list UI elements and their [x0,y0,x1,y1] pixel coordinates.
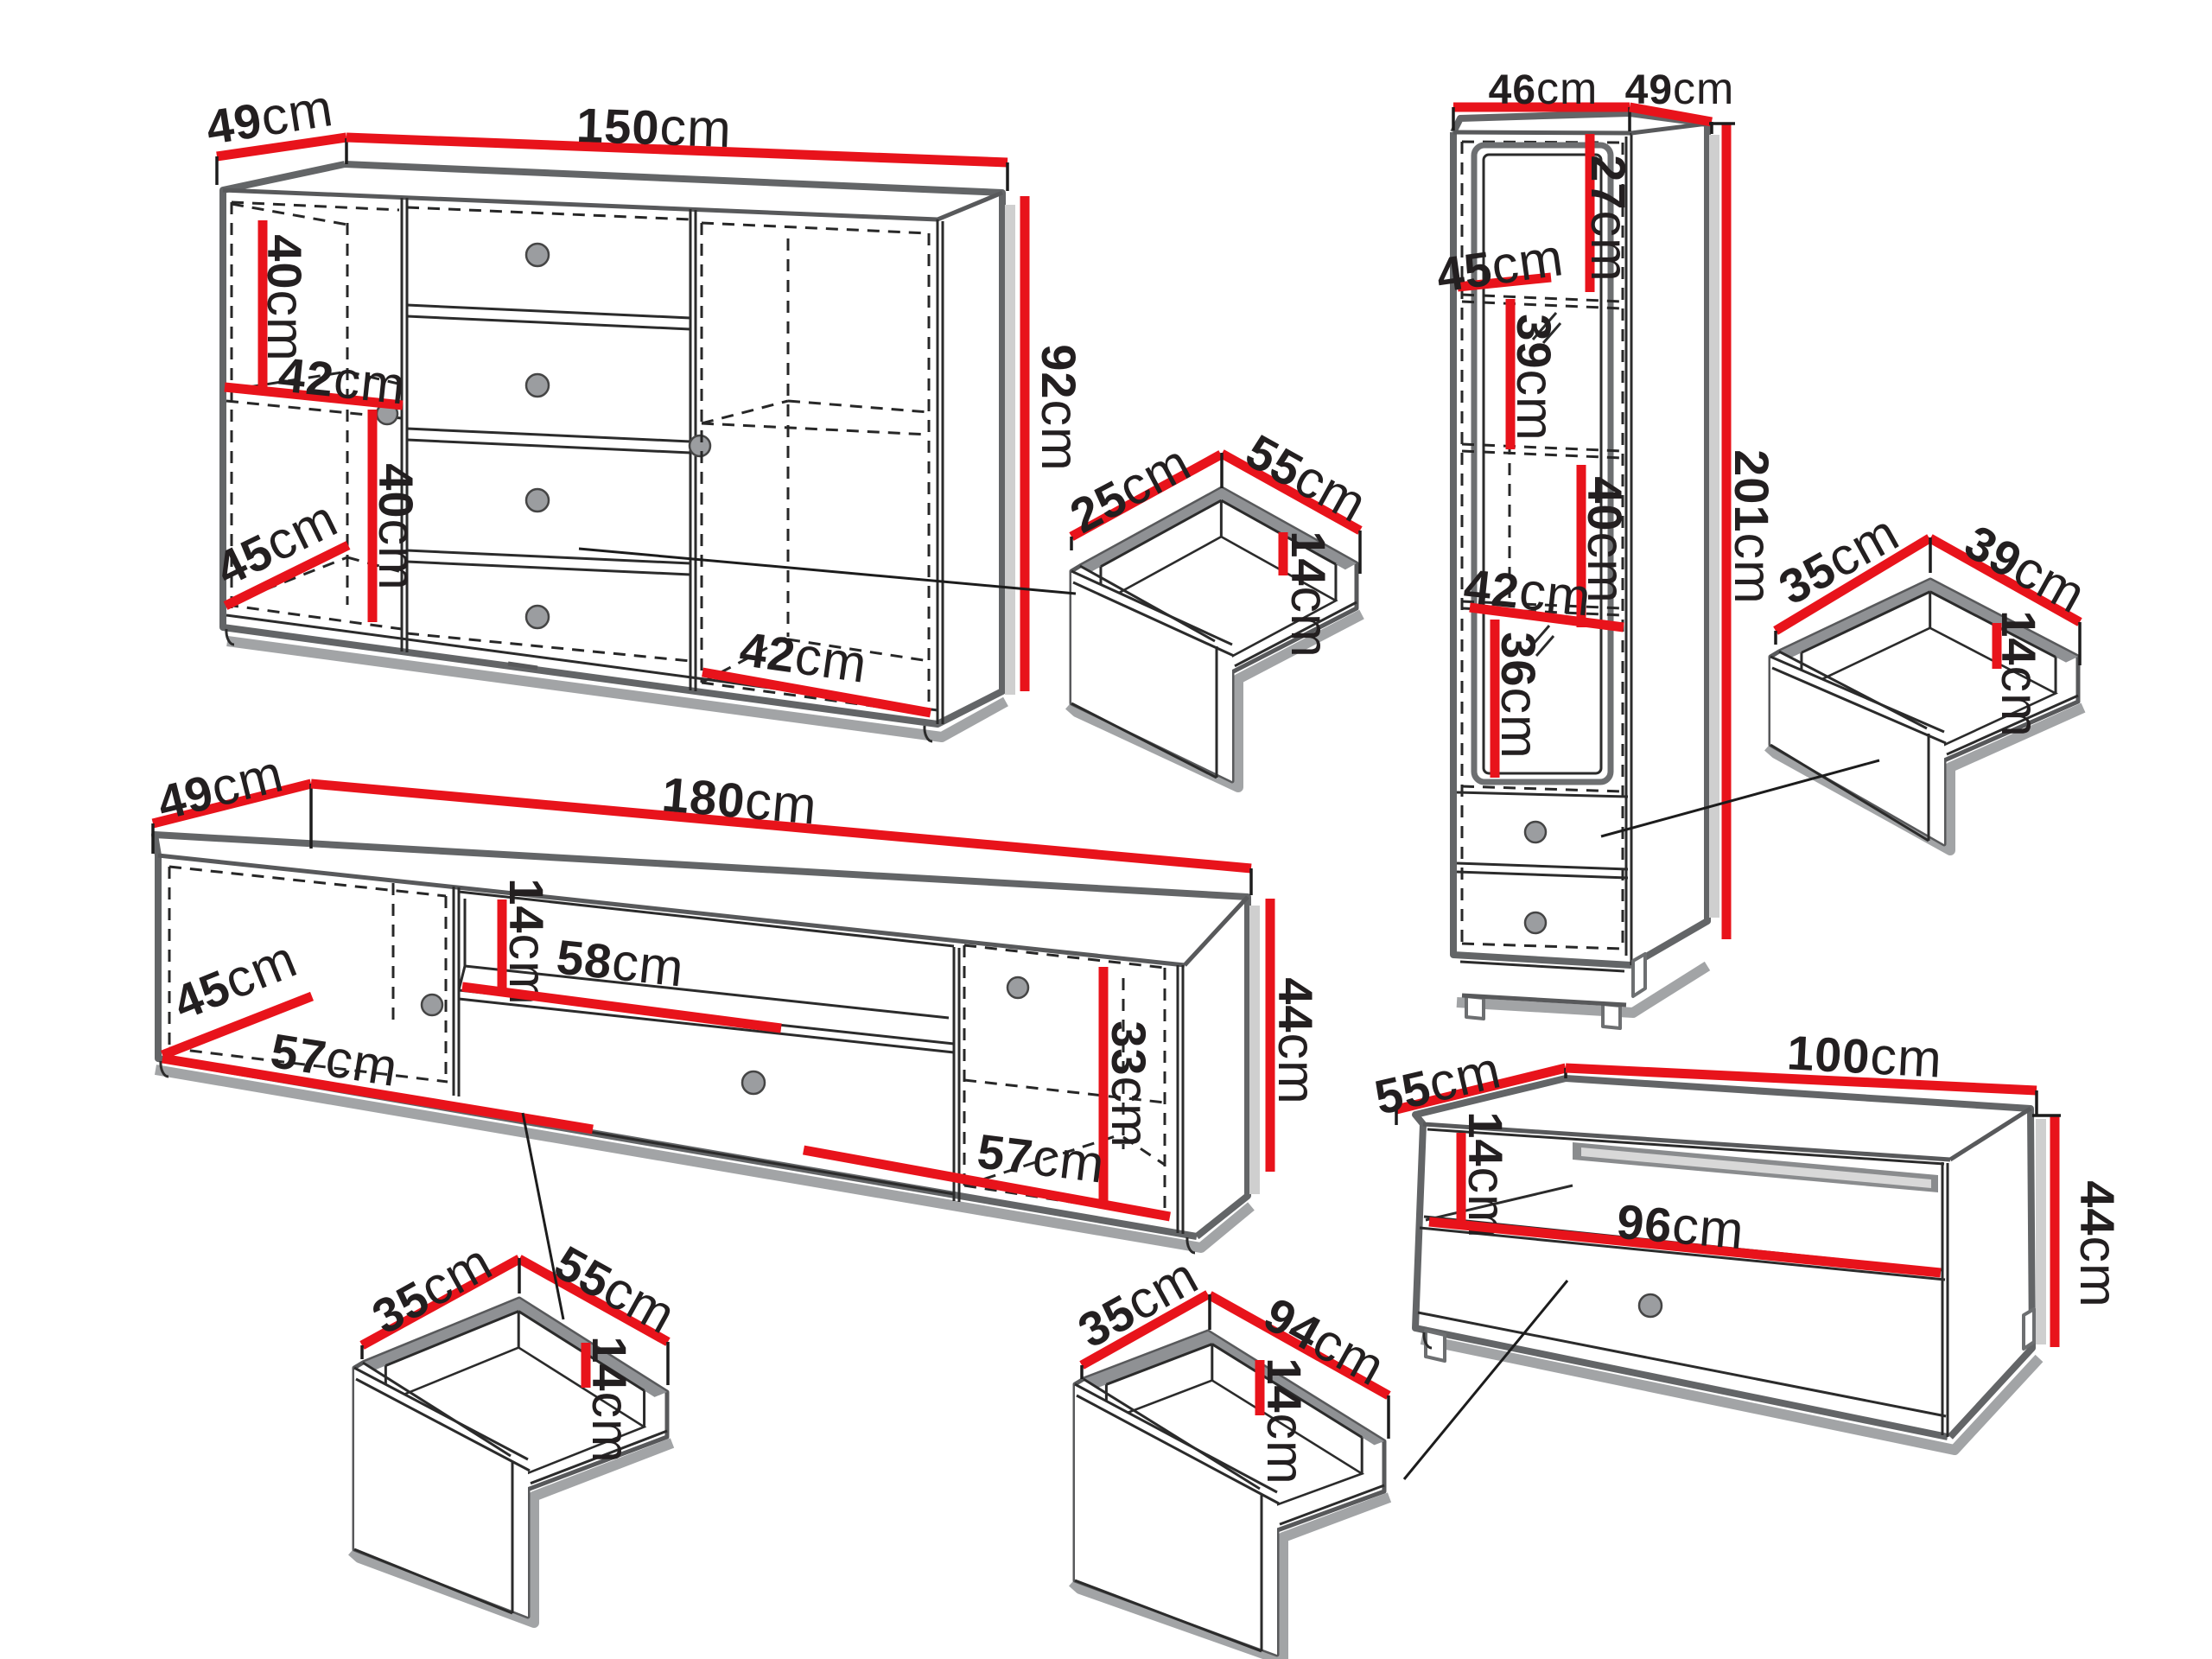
svg-text:27cm: 27cm [1580,155,1639,283]
svg-text:180cm: 180cm [660,763,820,835]
svg-text:40cm: 40cm [257,234,315,362]
svg-text:49cm: 49cm [1625,64,1735,114]
svg-text:44cm: 44cm [2069,1180,2128,1308]
svg-text:49cm: 49cm [151,743,289,831]
svg-text:14cm: 14cm [1458,1111,1516,1239]
svg-text:39cm: 39cm [1506,314,1565,442]
svg-text:150cm: 150cm [575,94,733,158]
svg-text:46cm: 46cm [1489,64,1599,114]
svg-text:201cm: 201cm [1724,449,1783,605]
svg-text:40cm: 40cm [368,463,427,591]
svg-text:14cm: 14cm [1281,531,1339,658]
svg-text:96cm: 96cm [1615,1191,1747,1261]
svg-text:14cm: 14cm [582,1336,640,1464]
svg-text:36cm: 36cm [1491,632,1549,760]
svg-text:14cm: 14cm [1256,1357,1315,1485]
svg-text:100cm: 100cm [1786,1021,1944,1088]
svg-text:33cm: 33cm [1101,1020,1160,1148]
svg-text:92cm: 92cm [1031,344,1090,472]
svg-text:14cm: 14cm [499,878,557,1006]
svg-text:44cm: 44cm [1268,977,1326,1105]
svg-text:14cm: 14cm [1991,610,2050,738]
